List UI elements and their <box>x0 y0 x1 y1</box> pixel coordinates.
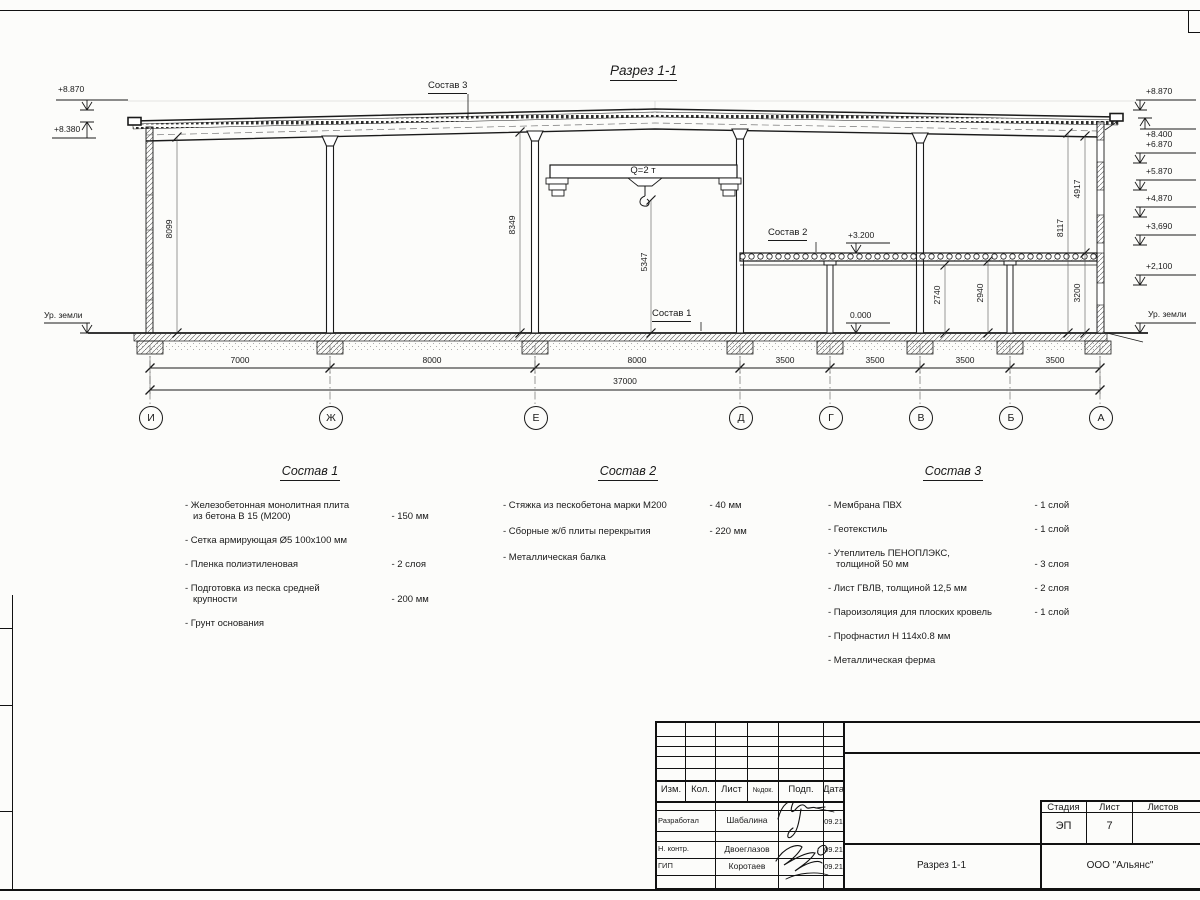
crane-capacity-label: Q=2 т <box>613 166 673 177</box>
spec-item: - Металлическая ферма <box>828 655 1078 666</box>
spec-item-name: - Подготовка из песка средней крупности <box>185 583 391 605</box>
spec-item-value: - 2 слоя <box>391 559 435 570</box>
axis-bubble: И <box>139 406 163 430</box>
vertical-dim-label: 8099 <box>164 199 174 259</box>
spec-item-name: - Пленка полиэтиленовая <box>185 559 391 570</box>
tb-role-developer: Разработал <box>658 816 699 825</box>
spec-item: - Грунт основания <box>185 618 435 629</box>
tb-doc-name: Разрез 1-1 <box>843 860 1040 871</box>
tb-sheet-header: Лист <box>1087 802 1132 813</box>
axis-bubble: Е <box>524 406 548 430</box>
tb-role-gip: ГИП <box>658 861 673 870</box>
axis-bubble: Ж <box>319 406 343 430</box>
spec-item-name: - Стяжка из пескобетона марки М200 <box>503 500 709 511</box>
spec-item-name: - Пароизоляция для плоских кровель <box>828 607 1034 618</box>
elevation-label-right: +8.870 <box>1146 87 1172 97</box>
span-dim-label: 3500 <box>755 355 815 365</box>
spec-item: - Мембрана ПВХ- 1 слой <box>828 500 1078 511</box>
drawing-sheet: Разрез 1-1 Состав 3 Состав 2 Состав 1 Q=… <box>0 0 1200 900</box>
elevation-label-right: +5.870 <box>1146 167 1172 177</box>
spec-title: Состав 1 <box>185 464 435 478</box>
spec-item: - Пароизоляция для плоских кровель- 1 сл… <box>828 607 1078 618</box>
callout-sostav1: Состав 1 <box>652 309 691 322</box>
tb-col-podp: Подп. <box>779 784 823 795</box>
tb-sheet-value: 7 <box>1087 820 1132 832</box>
elevation-label-right: +6.870 <box>1146 140 1172 150</box>
callout-sostav3: Состав 3 <box>428 81 467 94</box>
tb-col-list: Лист <box>716 784 747 795</box>
spec-item: - Лист ГВЛВ, толщиной 12,5 мм- 2 слоя <box>828 583 1078 594</box>
span-dim-label: 3500 <box>1025 355 1085 365</box>
tb-name-developer: Шабалина <box>716 815 778 825</box>
section-drawing <box>0 0 1200 460</box>
spec-item-value: - 1 слой <box>1034 524 1078 535</box>
spec-item-name: - Утеплитель ПЕНОПЛЭКС, толщиной 50 мм <box>828 548 1034 570</box>
spec-item-name: - Железобетонная монолитная плита из бет… <box>185 500 391 522</box>
tb-stage-value: ЭП <box>1041 820 1086 832</box>
span-dim-label: 7000 <box>210 355 270 365</box>
span-dim-label: 3500 <box>845 355 905 365</box>
spec-item-value: - 2 слоя <box>1034 583 1078 594</box>
tb-stage-header: Стадия <box>1041 802 1086 813</box>
spec-item-value: - 220 мм <box>709 526 753 537</box>
spec-list-1: Состав 1 - Железобетонная монолитная пли… <box>185 464 435 642</box>
spec-item-name: - Лист ГВЛВ, толщиной 12,5 мм <box>828 583 1034 594</box>
spec-item: - Сборные ж/б плиты перекрытия- 220 мм <box>503 526 753 537</box>
span-dim-label: 8000 <box>402 355 462 365</box>
vertical-dim-label: 5347 <box>639 232 649 292</box>
spec-item-name: - Металлическая ферма <box>828 655 1034 666</box>
tb-col-data: Дата <box>822 784 845 795</box>
span-dim-label: 3500 <box>935 355 995 365</box>
elevation-label-left: +8.380 <box>54 125 80 135</box>
spec-item-name: - Грунт основания <box>185 618 391 629</box>
spec-title: Состав 3 <box>828 464 1078 478</box>
tb-company: ООО "Альянс" <box>1040 860 1200 871</box>
tb-role-ncontr: Н. контр. <box>658 844 689 853</box>
spec-item: - Утеплитель ПЕНОПЛЭКС, толщиной 50 мм- … <box>828 548 1078 570</box>
spec-item: - Пленка полиэтиленовая- 2 слоя <box>185 559 435 570</box>
vertical-dim-label: 4917 <box>1072 159 1082 219</box>
spec-item-name: - Геотекстиль <box>828 524 1034 535</box>
vertical-dim-label: 2940 <box>975 263 985 323</box>
spec-item: - Подготовка из песка средней крупности-… <box>185 583 435 605</box>
elevation-label-left: +8.870 <box>58 85 84 95</box>
elevation-label-right: +2,100 <box>1146 262 1172 272</box>
signatures <box>772 795 842 887</box>
spec-list-2: Состав 2 - Стяжка из пескобетона марки М… <box>503 464 753 578</box>
spec-item-name: - Сборные ж/б плиты перекрытия <box>503 526 709 537</box>
spec-title: Состав 2 <box>503 464 753 478</box>
level-zero-label: 0.000 <box>850 311 871 321</box>
axis-bubble: Б <box>999 406 1023 430</box>
sheet-frame-left-tick3 <box>0 811 12 812</box>
spec-item-name: - Сетка армирующая Ø5 100х100 мм <box>185 535 391 546</box>
callout-sostav2: Состав 2 <box>768 228 807 241</box>
ground-level-label-left: Ур. земли <box>44 311 83 321</box>
axis-bubble: А <box>1089 406 1113 430</box>
axis-bubble: В <box>909 406 933 430</box>
elevation-label-right: +4,870 <box>1146 194 1172 204</box>
tb-col-ndok: №док. <box>748 787 778 794</box>
level-slab-label: +3.200 <box>848 231 874 241</box>
tb-name-ncontr: Двоеглазов <box>716 844 778 854</box>
spec-item: - Геотекстиль- 1 слой <box>828 524 1078 535</box>
axis-bubble: Д <box>729 406 753 430</box>
vertical-dim-label: 8349 <box>507 195 517 255</box>
spec-item-name: - Металлическая балка <box>503 552 709 563</box>
spec-item-value: - 150 мм <box>391 511 435 522</box>
tb-col-izm: Изм. <box>657 784 685 795</box>
spec-item-value: - 3 слоя <box>1034 559 1078 570</box>
elevation-label-right: +3,690 <box>1146 222 1172 232</box>
vertical-dim-label: 8117 <box>1055 198 1065 258</box>
spec-item: - Сетка армирующая Ø5 100х100 мм <box>185 535 435 546</box>
sheet-frame-left-tick1 <box>0 628 12 629</box>
spec-item: - Стяжка из пескобетона марки М200- 40 м… <box>503 500 753 511</box>
vertical-dim-label: 2740 <box>932 265 942 325</box>
spec-item-name: - Мембрана ПВХ <box>828 500 1034 511</box>
tb-sheets-header: Листов <box>1133 802 1193 813</box>
spec-item-name: - Профнастил Н 114х0.8 мм <box>828 631 1034 642</box>
tb-name-gip: Коротаев <box>716 861 778 871</box>
axis-bubble: Г <box>819 406 843 430</box>
section-title: Разрез 1-1 <box>610 63 677 81</box>
ground-level-label-right: Ур. земли <box>1148 310 1187 320</box>
spec-item-value: - 1 слой <box>1034 500 1078 511</box>
total-dim-label: 37000 <box>595 377 655 387</box>
spec-item: - Железобетонная монолитная плита из бет… <box>185 500 435 522</box>
sheet-frame-left <box>12 595 13 890</box>
spec-item-value: - 200 мм <box>391 594 435 605</box>
tb-col-kol: Кол. <box>686 784 715 795</box>
spec-item-value: - 1 слой <box>1034 607 1078 618</box>
spec-item: - Профнастил Н 114х0.8 мм <box>828 631 1078 642</box>
spec-item-value: - 40 мм <box>709 500 753 511</box>
title-block: Изм. Кол. Лист №док. Подп. Дата Разработ… <box>655 721 1200 890</box>
span-dim-label: 8000 <box>607 355 667 365</box>
sheet-frame-left-tick2 <box>0 705 12 706</box>
vertical-dim-label: 3200 <box>1072 263 1082 323</box>
spec-item: - Металлическая балка <box>503 552 753 563</box>
spec-list-3: Состав 3 - Мембрана ПВХ- 1 слой- Геотекс… <box>828 464 1078 679</box>
